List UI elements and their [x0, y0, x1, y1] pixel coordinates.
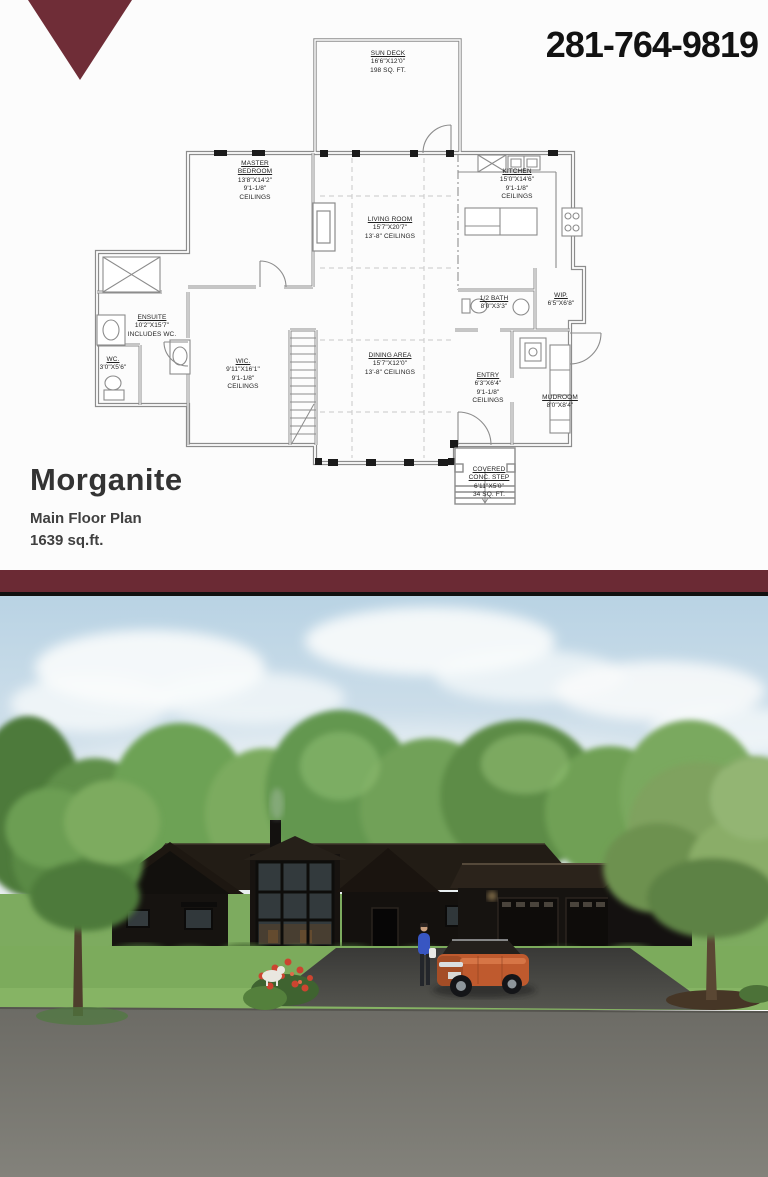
exterior-walls	[97, 40, 584, 463]
front-door	[372, 908, 398, 950]
plan-subtitle: Main Floor Plan	[30, 508, 183, 530]
mudroom-fixtures	[520, 338, 570, 433]
plan-title-block: Morganite Main Floor Plan 1639 sq.ft.	[30, 462, 183, 552]
room-label-half-bath: 1/2 BATH 8'0"X3'3"	[480, 295, 509, 312]
room-label-covered-step: COVERED CONC. STEP 6'11"X5'0" 34 SQ. FT.	[469, 466, 510, 500]
room-label-kitchen: KITCHEN 15'0"X14'6" 9'1-1/8" CEILINGS	[500, 168, 534, 202]
rendering-image	[0, 596, 768, 1177]
taillight	[439, 962, 463, 967]
staircase	[290, 338, 316, 443]
room-label-wip: WIP. 6'5"X6'8"	[548, 292, 575, 309]
floor-plan-section: SUN DECK 16'6"X12'0" 198 SQ. FT. MASTER …	[0, 0, 768, 570]
real-estate-flyer: 281-764-9819	[0, 0, 768, 1177]
window	[185, 909, 212, 929]
plan-area: 1639 sq.ft.	[30, 530, 183, 552]
room-label-master-bedroom: MASTER BEDROOM 13'8"X14'2" 9'1-1/8" CEIL…	[238, 160, 272, 202]
room-label-sun-deck: SUN DECK 16'6"X12'0" 198 SQ. FT.	[370, 50, 406, 75]
road	[0, 1008, 768, 1177]
exterior-rendering	[0, 596, 768, 1177]
room-label-dining-area: DINING AREA 15'7"X12'0" 13'-8" CEILINGS	[365, 352, 415, 377]
ceiling-grid	[320, 158, 455, 458]
downlight	[487, 891, 497, 901]
room-label-mudroom: MUDROOM 8'0"X8'4"	[542, 394, 578, 411]
plan-title: Morganite	[30, 462, 183, 498]
room-label-wc: WC. 3'0"X5'6"	[100, 356, 127, 373]
maroon-divider-bar	[0, 570, 768, 592]
fireplace	[313, 203, 335, 251]
room-label-wic: WIC. 9'11"X16'1" 9'1-1/8" CEILINGS	[226, 358, 260, 392]
room-label-entry: ENTRY 6'3"X6'4" 9'1-1/8" CEILINGS	[472, 372, 503, 406]
room-label-living-room: LIVING ROOM 15'7"X20'7" 13'-8" CEILINGS	[365, 216, 415, 241]
room-label-ensuite: ENSUITE 10'2"X15'7" INCLUDES WC.	[128, 314, 177, 339]
